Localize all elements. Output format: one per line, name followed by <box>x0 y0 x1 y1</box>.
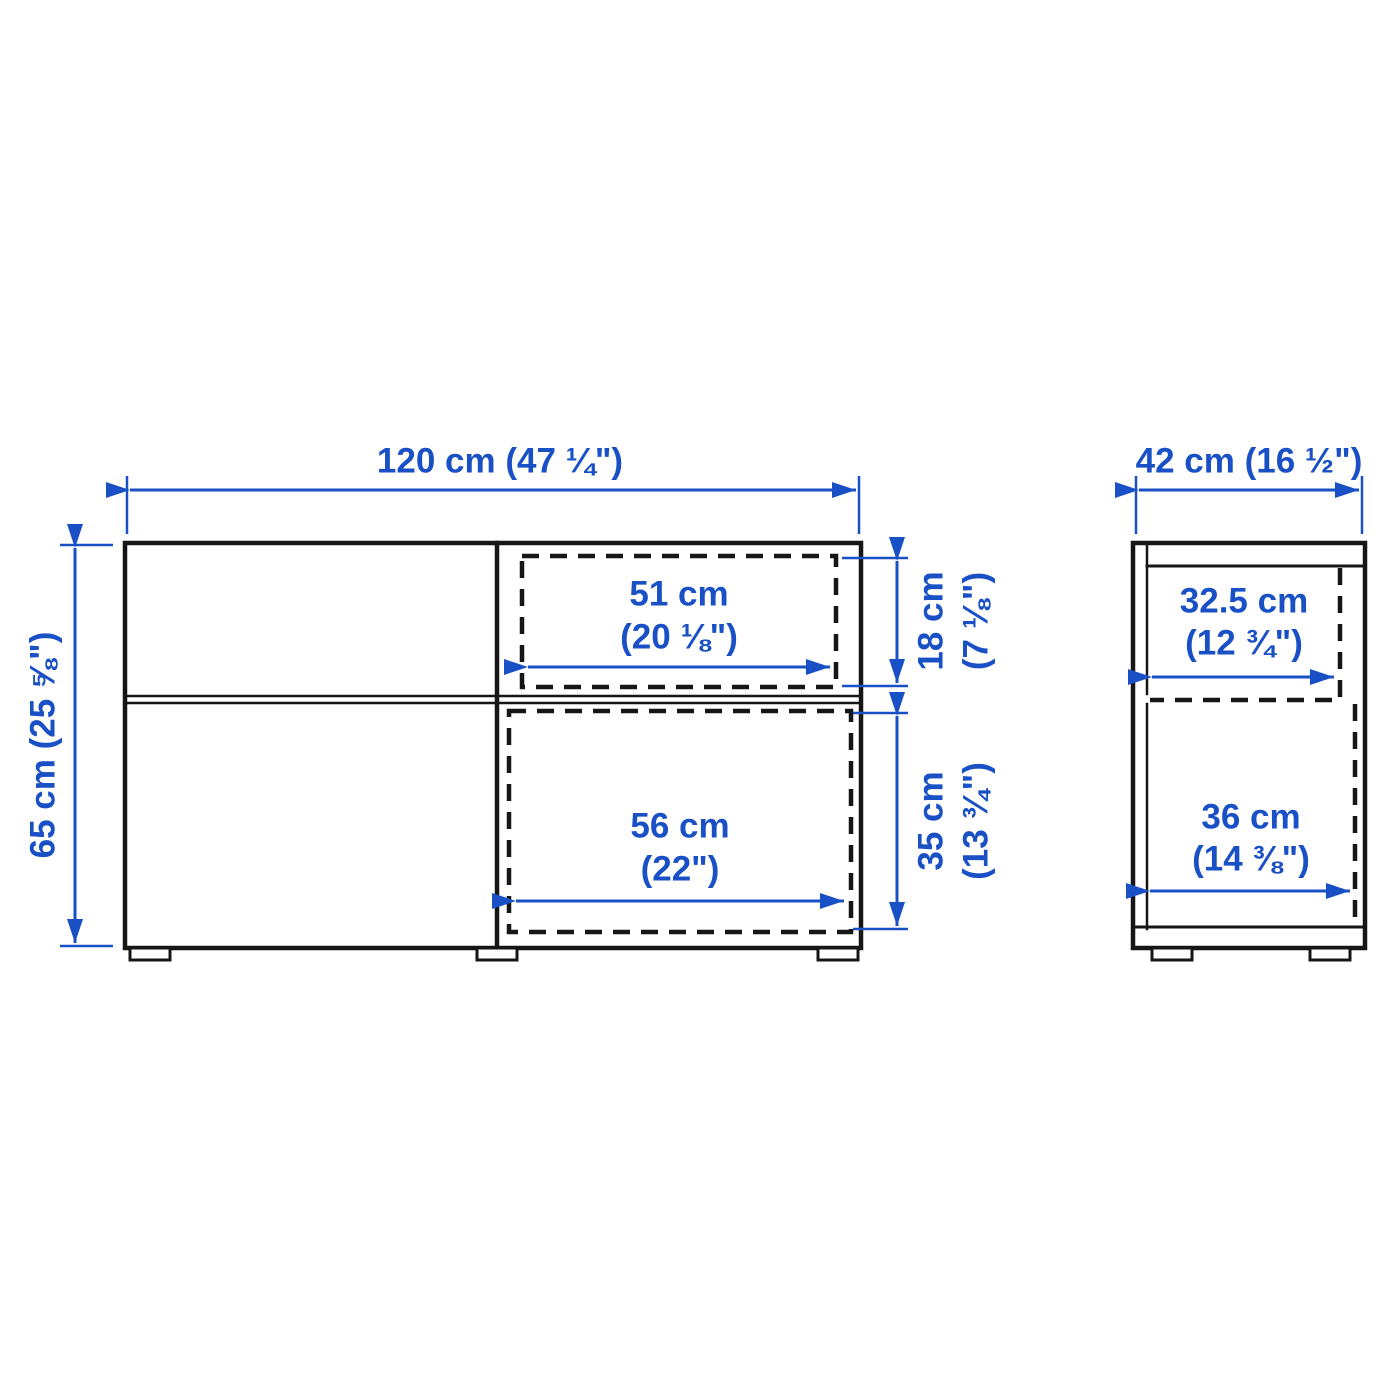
side-bottom-depth-label-line1: 36 cm <box>1201 798 1300 837</box>
front-foot-right <box>818 948 858 960</box>
furniture-dimension-diagram: 120 cm (47 ¼") 65 cm (25 ⅝") 51 cm (20 ⅛… <box>0 0 1400 1400</box>
front-width-dimension: 120 cm (47 ¼") <box>127 442 859 535</box>
side-bottom-depth-dimension: 36 cm (14 ⅜") <box>1150 798 1350 892</box>
front-foot-center <box>477 948 517 960</box>
front-bottom-height-label-line1: 35 cm <box>912 771 951 870</box>
diagram-canvas: 120 cm (47 ¼") 65 cm (25 ⅝") 51 cm (20 ⅛… <box>0 0 1400 1400</box>
front-bottom-height-dimension: 35 cm (13 ¾") <box>853 713 996 929</box>
side-depth-label: 42 cm (16 ½") <box>1136 442 1363 481</box>
side-bottom-depth-label-line2: (14 ⅜") <box>1192 840 1310 879</box>
front-height-label: 65 cm (25 ⅝") <box>24 632 63 859</box>
front-bottom-width-dimension: 56 cm (22") <box>516 807 844 902</box>
front-top-drawer-width-label-line2: (20 ⅛") <box>620 618 738 657</box>
front-top-drawer-width-label-line1: 51 cm <box>629 575 728 614</box>
front-top-drawer-height-label-line2: (7 ⅛") <box>957 572 996 670</box>
side-top-drawer-depth-label-line1: 32.5 cm <box>1180 582 1308 621</box>
front-bottom-width-label-line1: 56 cm <box>630 807 729 846</box>
side-view: 42 cm (16 ½") 32.5 cm (12 ¾") 36 cm (14 … <box>1133 442 1365 961</box>
front-bottom-height-label-line2: (13 ¾") <box>957 762 996 880</box>
front-width-label: 120 cm (47 ¼") <box>377 442 623 481</box>
side-foot-back <box>1310 948 1350 960</box>
front-top-drawer-height-dimension: 18 cm (7 ⅛") <box>842 558 996 686</box>
side-depth-dimension: 42 cm (16 ½") <box>1136 442 1363 535</box>
front-top-drawer-width-dimension: 51 cm (20 ⅛") <box>528 575 830 668</box>
front-height-dimension: 65 cm (25 ⅝") <box>24 545 114 946</box>
front-top-drawer-height-label-line1: 18 cm <box>912 571 951 670</box>
side-foot-front <box>1152 948 1192 960</box>
front-view-outline <box>125 543 861 948</box>
side-top-drawer-depth-dimension: 32.5 cm (12 ¾") <box>1152 582 1334 678</box>
front-view: 120 cm (47 ¼") 65 cm (25 ⅝") 51 cm (20 ⅛… <box>24 442 996 961</box>
front-bottom-width-label-line2: (22") <box>641 850 720 889</box>
front-foot-left <box>130 948 170 960</box>
side-top-drawer-depth-label-line2: (12 ¾") <box>1185 624 1303 663</box>
